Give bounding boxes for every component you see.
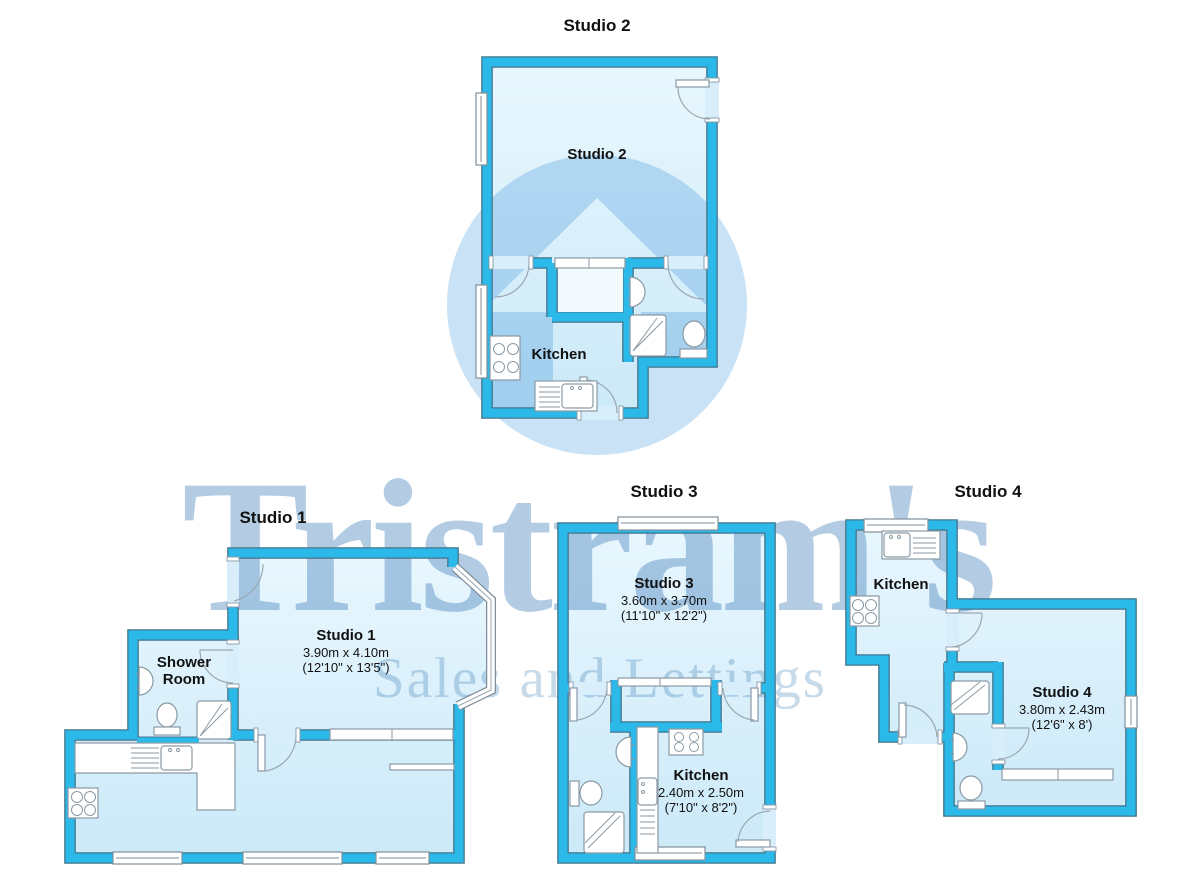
studio4-title: Studio 4 [954,483,1021,501]
studio2-toilet-icon [680,321,707,358]
studio2-room-label: Studio 2 [567,147,626,163]
studio4-window-right [1125,696,1137,728]
studio2-basin-icon [627,277,645,307]
studio4-wardrobe [1002,769,1113,780]
studio1-walls-outline [70,553,459,858]
studio2-window-upper [476,93,487,165]
studio3-kitchen-label: Kitchen 2.40m x 2.50m (7'10" x 8'2") [658,768,744,816]
studio4-kitchen-door [946,609,982,651]
studio1-entry-door [227,557,263,607]
studio1-room-label: Studio 1 3.90m x 4.10m (12'10" x 13'5") [302,628,389,676]
studio3-toilet-icon [570,781,602,806]
studio2-kitchen-label: Kitchen [531,347,586,363]
studio2-window-lower [476,285,487,378]
studio2-entry-door [676,78,719,122]
studio4-room-dims-metric: 3.80m x 2.43m [1019,702,1105,718]
studio3-hob-icon [669,729,703,755]
studio1-window-2 [243,852,342,864]
studio3-kitchen-dims-imperial: (7'10" x 8'2") [658,800,744,816]
shower-room-line1: Shower [157,655,211,672]
studio1-shower-room-label: Shower Room [157,655,211,688]
studio4-toilet-icon [958,776,985,809]
studio1-room-name: Studio 1 [302,628,389,645]
studio2-title: Studio 2 [563,17,630,35]
studio2-sink-icon [535,381,597,411]
studio3-window-top [618,517,718,530]
studio4-room-dims-imperial: (12'6" x 8') [1019,717,1105,733]
studio4-sink-icon [882,531,940,559]
studio3-kitchen-dims-metric: 2.40m x 2.50m [658,785,744,801]
studio3-kitchen-name: Kitchen [658,768,744,785]
studio1-shower-icon [197,701,231,739]
studio2-walls [487,62,712,413]
studio2-closet [558,268,623,312]
studio4-room-name: Studio 4 [1019,685,1105,702]
studio1-kitchen-door [254,728,300,771]
studio3-closet-front [618,678,711,686]
studio4-basin-icon [950,733,967,761]
studio4-walls [851,525,1131,811]
studio1-toilet-icon [154,703,180,735]
studio1-window-1 [113,852,182,864]
studio1-bay-window [455,567,491,706]
studio1-room-dims-metric: 3.90m x 4.10m [302,645,389,661]
studio2-bathroom-door [664,256,708,299]
studio2-kitchen-door [489,256,533,297]
studio2-hob-icon [490,336,520,380]
studio3-right-door [718,682,761,721]
studio1-window-3 [376,852,429,864]
studio1-wardrobe [330,729,454,770]
studio2-closet-front [555,258,625,268]
shower-room-line2: Room [157,672,211,689]
studio1-hob-icon [68,788,98,818]
studio1-room-dims-imperial: (12'10" x 13'5") [302,660,389,676]
studio4-room-label: Studio 4 3.80m x 2.43m (12'6" x 8') [1019,685,1105,733]
studio1-plan [68,553,491,864]
studio1-title: Studio 1 [239,509,306,527]
studio4-plan [850,519,1137,811]
floorplan-canvas: Tristram's Sales and Lettings [0,0,1200,873]
studio2-shower-icon [630,315,666,356]
studio4-shower-icon [951,681,989,714]
plan-details-layer [0,0,1200,873]
studio3-left-door [569,682,611,721]
studio3-room-dims-metric: 3.60m x 3.70m [621,593,707,609]
studio1-basin-icon [136,667,153,695]
studio3-title: Studio 3 [630,483,697,501]
studio2-plan [476,62,719,420]
studio3-room-label: Studio 3 3.60m x 3.70m (11'10" x 12'2") [621,576,707,624]
studio3-room-name: Studio 3 [621,576,707,593]
studio4-front-door [898,703,942,744]
studio3-shower-icon [584,812,624,853]
studio4-window-kitchen [864,519,928,532]
studio4-kitchen-label: Kitchen [873,577,928,593]
studio3-room-dims-imperial: (11'10" x 12'2") [621,608,707,624]
studio4-hob-icon [850,596,879,626]
